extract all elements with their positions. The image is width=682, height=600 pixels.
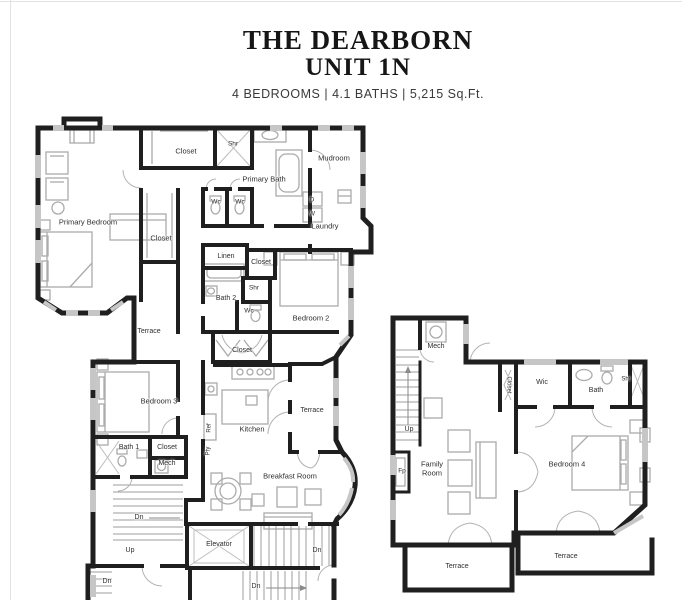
room-label-mech: Mech <box>158 460 175 468</box>
room-label-closet: Closet <box>232 347 252 355</box>
room-label-closet: Closet <box>150 235 171 244</box>
room-label-laundry: Laundry <box>311 223 338 232</box>
room-label-wic: Wic <box>536 379 548 387</box>
room-label-bath-2: Bath 2 <box>216 295 236 303</box>
room-label-wc: Wc <box>235 198 244 205</box>
room-label-dn: Dn <box>103 578 112 586</box>
room-label-wc: Wc <box>244 307 253 314</box>
room-label-fp: Fp <box>398 467 406 474</box>
room-label-terrace: Terrace <box>300 407 323 415</box>
room-label-up: Up <box>126 547 135 555</box>
room-label-primary-bedroom: Primary Bedroom <box>59 219 117 228</box>
room-label-terrace: Terrace <box>554 553 577 561</box>
room-label-breakfast-room: Breakfast Room <box>263 473 317 482</box>
room-label-w: W <box>309 210 315 217</box>
room-label-shr: Shr <box>228 140 238 147</box>
room-label-pty: Pty <box>206 447 213 456</box>
room-label-closet: Closet <box>505 376 512 393</box>
room-label-closet: Closet <box>175 148 196 157</box>
room-label-elevator: Elevator <box>206 541 232 549</box>
room-label-bedroom-2: Bedroom 2 <box>293 315 330 324</box>
room-label-wc: Wc <box>211 198 220 205</box>
room-label-terrace: Terrace <box>445 563 468 571</box>
room-label-bedroom-4: Bedroom 4 <box>549 461 586 470</box>
room-label-mudroom: Mudroom <box>318 155 350 164</box>
room-label-bath-1: Bath 1 <box>119 444 139 452</box>
room-label-bedroom-3: Bedroom 3 <box>141 398 178 407</box>
room-label-family-room: Family Room <box>410 460 454 477</box>
room-label-ref: Ref <box>207 423 214 432</box>
room-label-kitchen: Kitchen <box>239 426 264 435</box>
room-labels-layer: ClosetShrPrimary BathMudroomPrimary Bedr… <box>0 0 682 600</box>
room-label-terrace: Terrace <box>137 328 160 336</box>
room-label-shr: Shr <box>621 377 630 384</box>
room-label-up: Up <box>405 426 414 434</box>
room-label-dn: Dn <box>135 514 144 522</box>
room-label-linen: Linen <box>217 253 234 261</box>
floorplan-sheet: THE DEARBORN UNIT 1N 4 BEDROOMS | 4.1 BA… <box>0 0 682 600</box>
room-label-closet: Closet <box>251 259 271 267</box>
room-label-primary-bath: Primary Bath <box>241 176 287 185</box>
room-label-mech: Mech <box>427 343 444 351</box>
room-label-d: D <box>310 196 315 203</box>
room-label-bath: Bath <box>589 387 603 395</box>
room-label-shr: Shr <box>249 284 259 291</box>
room-label-closet: Closet <box>157 444 177 452</box>
room-label-dn: Dn <box>313 547 322 555</box>
room-label-dn: Dn <box>252 583 261 591</box>
